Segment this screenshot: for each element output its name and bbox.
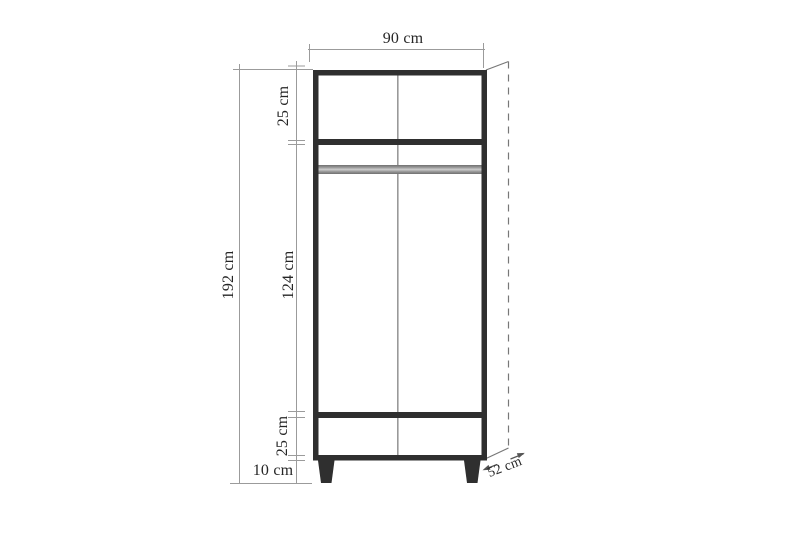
right-leg: [464, 461, 481, 484]
left-side-panel: [313, 70, 319, 461]
total-height-dimension-label: 192 cm: [220, 251, 238, 300]
bottom-section-dimension-label: 25 cm: [274, 416, 292, 457]
hanging-rod: [318, 165, 482, 174]
bottom-depth-edge: [485, 448, 509, 459]
right-side-panel: [482, 70, 488, 461]
bottom-panel: [313, 455, 487, 461]
middle-section-dimension-label: 124 cm: [280, 251, 298, 300]
width-dimension-label: 90 cm: [383, 30, 424, 48]
center-door-divider: [397, 75, 399, 455]
wardrobe-line-drawing: [0, 0, 800, 533]
left-leg: [318, 461, 335, 484]
lower-shelf: [318, 412, 482, 418]
depth-perspective: [485, 62, 509, 460]
legs-height-dimension-label: 10 cm: [253, 462, 294, 480]
cabinet-frame: [313, 70, 487, 461]
wardrobe-cabinet: [313, 70, 487, 483]
upper-shelf: [318, 139, 482, 145]
top-panel: [313, 70, 487, 76]
wardrobe-dimension-diagram: 90 cm 25 cm 192 cm 124 cm 25 cm 10 cm 52…: [0, 0, 800, 533]
top-section-dimension-label: 25 cm: [275, 86, 293, 127]
top-depth-edge: [486, 62, 509, 71]
